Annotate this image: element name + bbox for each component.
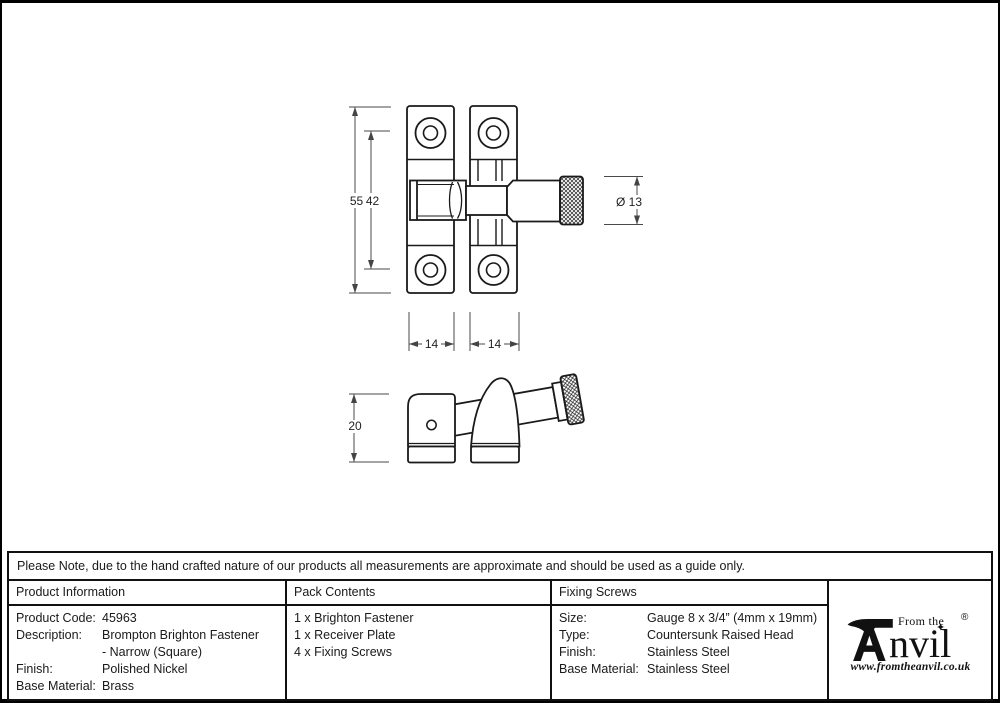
fixing-screws-row: Finish: Stainless Steel bbox=[559, 644, 820, 661]
anvil-icon bbox=[843, 615, 895, 661]
fixing-screws-row: Base Material: Stainless Steel bbox=[559, 661, 820, 678]
field-value: Brompton Brighton Fastener bbox=[102, 627, 278, 644]
field-value: Countersunk Raised Head bbox=[647, 627, 820, 644]
product-info-row: Finish: Polished Nickel bbox=[16, 661, 278, 678]
front-knurled-knob bbox=[560, 177, 583, 225]
field-value: 45963 bbox=[102, 610, 278, 627]
receiver-wedge bbox=[471, 378, 520, 446]
measurement-note: Please Note, due to the hand crafted nat… bbox=[7, 551, 993, 581]
field-value: Stainless Steel bbox=[647, 644, 820, 661]
field-value: Gauge 8 x 3/4” (4mm x 19mm) bbox=[647, 610, 820, 627]
field-label: Description: bbox=[16, 627, 102, 644]
front-view bbox=[407, 106, 583, 293]
header-product-information: Product Information bbox=[9, 581, 287, 606]
registered-trademark-icon: ® bbox=[961, 612, 968, 623]
diamond-icon: ✦ bbox=[936, 621, 945, 634]
field-label: Type: bbox=[559, 627, 647, 644]
fixing-screws-row: Size: Gauge 8 x 3/4” (4mm x 19mm) bbox=[559, 610, 820, 627]
dim-side-height: 20 bbox=[348, 419, 362, 433]
dim-plate-width-right: 14 bbox=[488, 337, 502, 351]
fastener-drawing: 55 42 Ø 13 14 14 bbox=[2, 3, 998, 549]
dim-total-height: 55 bbox=[350, 194, 364, 208]
logo-website: www.fromtheanvil.co.uk bbox=[838, 661, 983, 673]
side-body-baseplate bbox=[408, 447, 455, 463]
field-label bbox=[16, 644, 102, 661]
header-pack-contents: Pack Contents bbox=[287, 581, 552, 606]
fixing-screws-row: Type: Countersunk Raised Head bbox=[559, 627, 820, 644]
from-the-anvil-logo: From the nvil ✦ ® www.fromtheanvil.co.uk bbox=[843, 611, 977, 669]
field-label: Base Material: bbox=[559, 661, 647, 678]
spec-table: Product Information Pack Contents Fixing… bbox=[7, 581, 993, 701]
field-label: Product Code: bbox=[16, 610, 102, 627]
dim-hole-spacing: 42 bbox=[366, 194, 380, 208]
field-label: Finish: bbox=[559, 644, 647, 661]
product-info-row: Description: Brompton Brighton Fastener bbox=[16, 627, 278, 644]
dim-knob-diameter: Ø 13 bbox=[616, 195, 642, 209]
fixing-screws-cell: Size: Gauge 8 x 3/4” (4mm x 19mm) Type: … bbox=[552, 606, 829, 699]
side-dimension-labels: 20 bbox=[345, 419, 363, 433]
field-label: Size: bbox=[559, 610, 647, 627]
field-label: Base Material: bbox=[16, 678, 102, 695]
side-view bbox=[408, 374, 584, 463]
field-value: Brass bbox=[102, 678, 278, 695]
side-pivot-hole bbox=[427, 420, 436, 429]
product-info-row: Base Material: Brass bbox=[16, 678, 278, 695]
datasheet-page: 55 42 Ø 13 14 14 bbox=[0, 0, 1000, 703]
pack-item: 4 x Fixing Screws bbox=[294, 644, 543, 661]
info-panel: Please Note, due to the hand crafted nat… bbox=[7, 551, 993, 696]
field-value: Stainless Steel bbox=[647, 661, 820, 678]
technical-drawing-area: 55 42 Ø 13 14 14 bbox=[2, 3, 998, 549]
side-receiver-baseplate bbox=[471, 447, 519, 463]
dim-plate-width-left: 14 bbox=[425, 337, 439, 351]
product-information-cell: Product Code: 45963 Description: Brompto… bbox=[9, 606, 287, 699]
measurement-note-text: Please Note, due to the hand crafted nat… bbox=[17, 559, 745, 573]
field-value: - Narrow (Square) bbox=[102, 644, 278, 661]
product-info-row: - Narrow (Square) bbox=[16, 644, 278, 661]
field-label: Finish: bbox=[16, 661, 102, 678]
header-fixing-screws: Fixing Screws bbox=[552, 581, 829, 606]
pack-item: 1 x Receiver Plate bbox=[294, 627, 543, 644]
product-info-row: Product Code: 45963 bbox=[16, 610, 278, 627]
front-bolt bbox=[410, 181, 560, 222]
brand-logo-cell: From the nvil ✦ ® www.fromtheanvil.co.uk bbox=[829, 581, 991, 699]
field-value: Polished Nickel bbox=[102, 661, 278, 678]
pack-item: 1 x Brighton Fastener bbox=[294, 610, 543, 627]
pack-contents-cell: 1 x Brighton Fastener 1 x Receiver Plate… bbox=[287, 606, 552, 699]
